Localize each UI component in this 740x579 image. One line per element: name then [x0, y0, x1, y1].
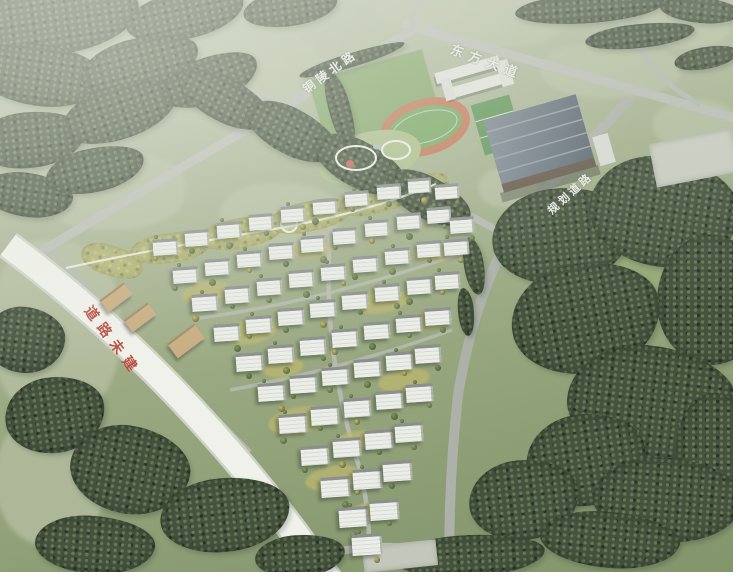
image-border-bottom [0, 572, 740, 579]
road-label-tongling-north: 铜陵北路 [299, 45, 361, 96]
labels-layer: 铜陵北路 东方大道 规划道路 道路未建 [0, 0, 740, 579]
road-label-planned-road: 规划道路 [544, 168, 596, 217]
road-label-unbuilt: 道路未建 [80, 301, 147, 380]
road-label-dongfang-avenue: 东方大道 [448, 39, 526, 83]
aerial-master-plan-rendering: 铜陵北路 东方大道 规划道路 道路未建 [0, 0, 740, 579]
image-border-right [733, 0, 740, 579]
